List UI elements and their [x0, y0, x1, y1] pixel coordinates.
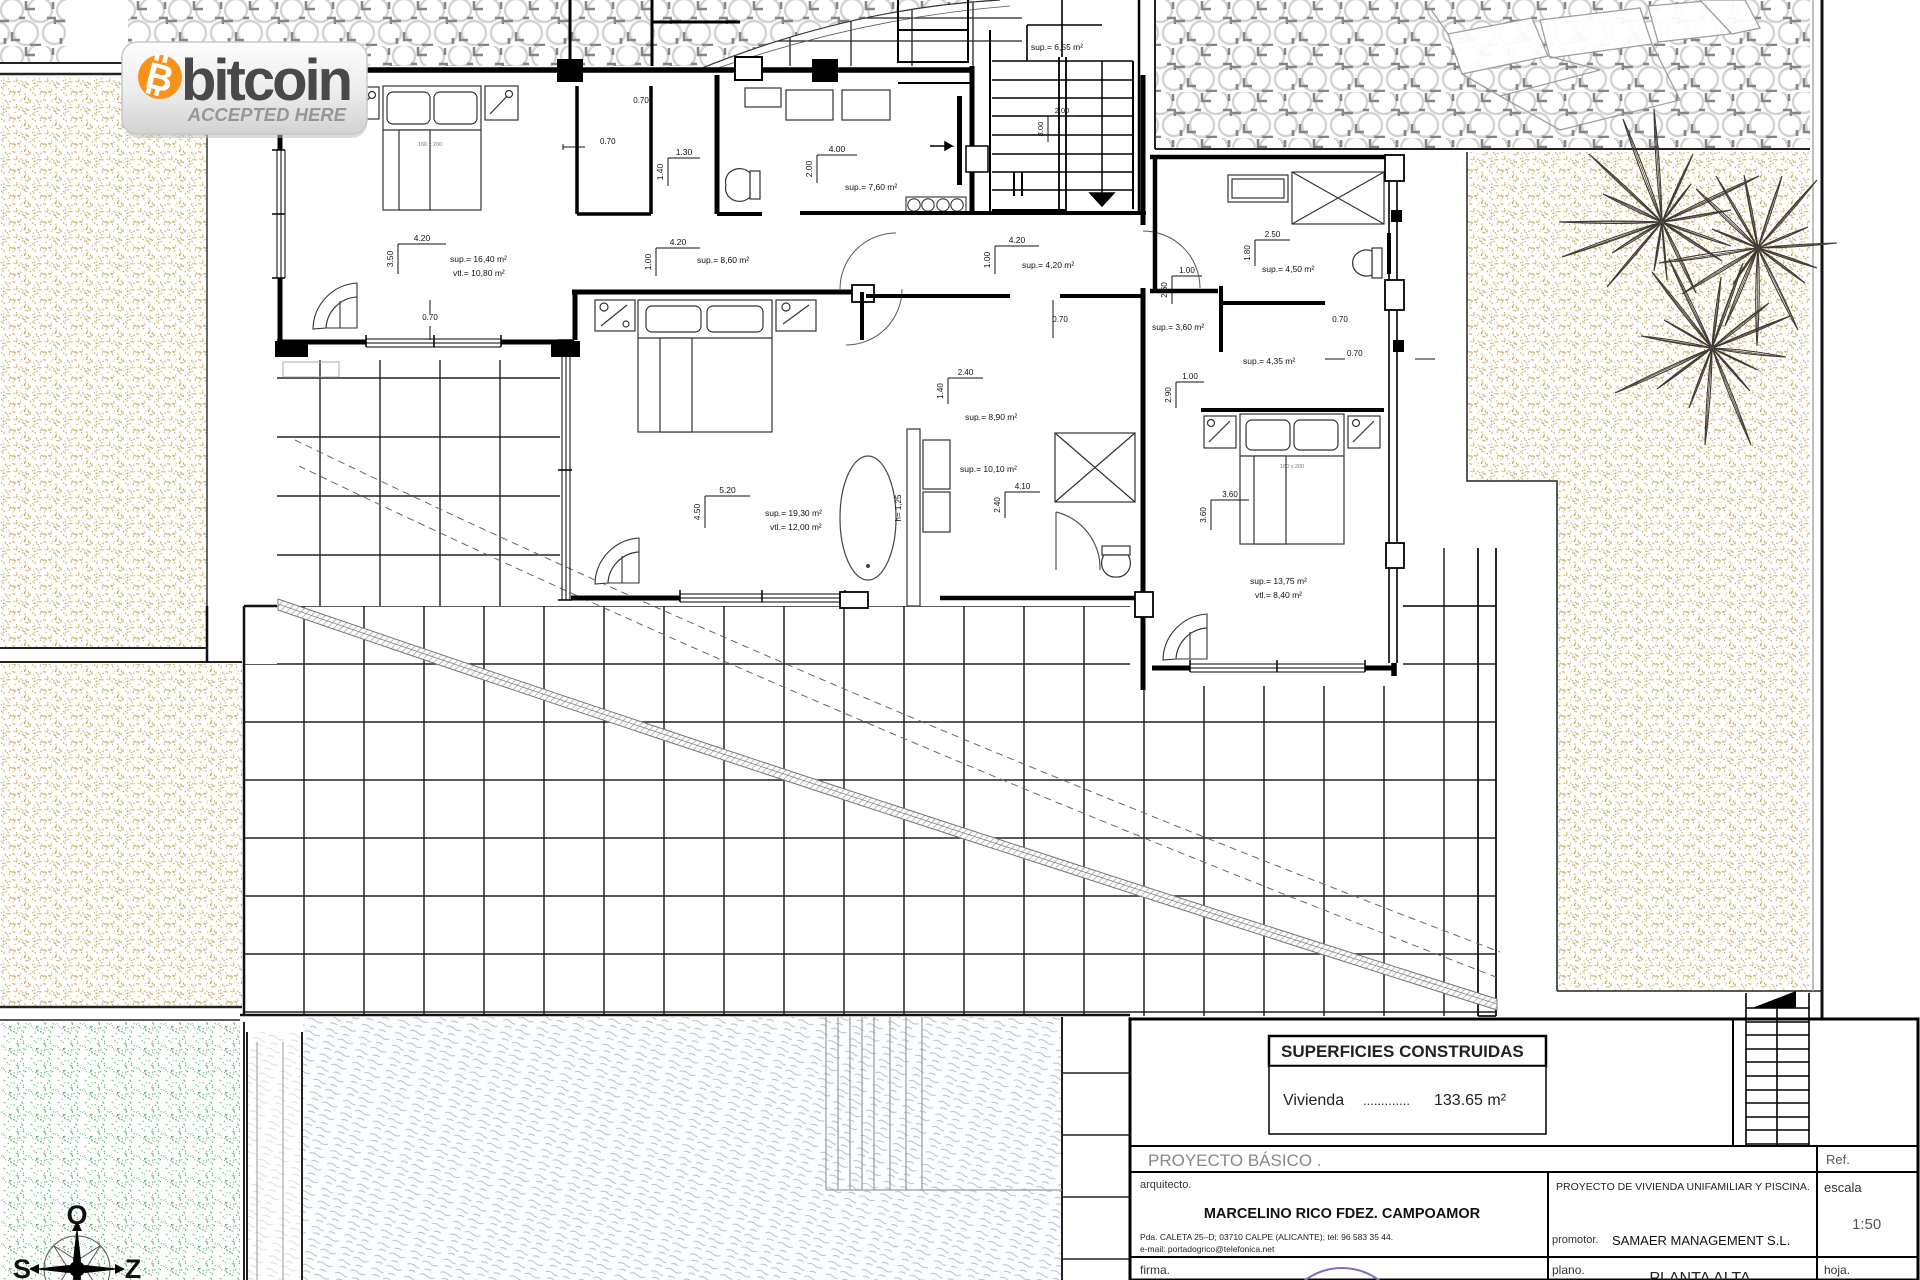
svg-text:SAMAER MANAGEMENT S.L.: SAMAER MANAGEMENT S.L. — [1612, 1233, 1790, 1248]
svg-text:0.70: 0.70 — [422, 313, 438, 322]
svg-text:1.40: 1.40 — [936, 383, 945, 399]
svg-text:vtl.= 12,00 m²: vtl.= 12,00 m² — [770, 522, 822, 532]
svg-text:1.00: 1.00 — [1182, 372, 1198, 381]
svg-text:PROYECTO BÁSICO .: PROYECTO BÁSICO . — [1148, 1151, 1322, 1170]
svg-text:e-mail: portadogrico@telefonic: e-mail: portadogrico@telefonica.net — [1140, 1244, 1275, 1254]
svg-text:vtl.= 8,40 m²: vtl.= 8,40 m² — [1255, 590, 1302, 600]
svg-text:Pda. CALETA 25–D; 03710 CALPE: Pda. CALETA 25–D; 03710 CALPE (ALICANTE)… — [1140, 1232, 1393, 1242]
svg-text:4.10: 4.10 — [1015, 482, 1031, 491]
svg-text:sup.= 16,40 m²: sup.= 16,40 m² — [450, 254, 507, 264]
svg-text:3.60: 3.60 — [1222, 490, 1238, 499]
svg-text:0.70: 0.70 — [1347, 349, 1363, 358]
svg-text:S: S — [13, 1254, 31, 1280]
svg-text:O: O — [66, 1200, 87, 1230]
svg-text:Vivienda: Vivienda — [1283, 1092, 1344, 1109]
svg-text:160 x 200: 160 x 200 — [418, 142, 442, 148]
svg-text:1.00: 1.00 — [643, 253, 653, 270]
svg-text:4.20: 4.20 — [670, 237, 687, 247]
svg-text:sup.= 7,60 m²: sup.= 7,60 m² — [845, 182, 897, 192]
svg-text:sup.= 8,90 m²: sup.= 8,90 m² — [965, 412, 1017, 422]
svg-text:plano.: plano. — [1552, 1263, 1585, 1277]
svg-text:firma.: firma. — [1140, 1263, 1170, 1277]
svg-text:160 x 200: 160 x 200 — [1280, 464, 1304, 470]
svg-text:1.00: 1.00 — [1179, 266, 1195, 275]
svg-text:Ref.: Ref. — [1826, 1152, 1850, 1167]
svg-text:.............: ............. — [1363, 1093, 1410, 1108]
svg-text:3.60: 3.60 — [1199, 507, 1208, 523]
svg-text:sup.= 8,60 m²: sup.= 8,60 m² — [697, 255, 749, 265]
svg-text:sup.= 19,30 m²: sup.= 19,30 m² — [765, 508, 822, 518]
svg-text:3.00: 3.00 — [1036, 122, 1045, 137]
svg-text:1.30: 1.30 — [676, 147, 693, 157]
svg-text:sup.= 4,20 m²: sup.= 4,20 m² — [1022, 260, 1074, 270]
svg-text:MARCELINO RICO FDEZ. CAMPOAMOR: MARCELINO RICO FDEZ. CAMPOAMOR — [1204, 1206, 1481, 1222]
svg-text:2.40: 2.40 — [958, 368, 974, 377]
svg-text:1.80: 1.80 — [1243, 245, 1252, 261]
svg-text:1:50: 1:50 — [1852, 1216, 1881, 1233]
svg-text:0.70: 0.70 — [1052, 315, 1068, 324]
svg-text:0.70: 0.70 — [633, 96, 649, 105]
svg-text:0.70: 0.70 — [1332, 315, 1348, 324]
svg-text:Z: Z — [125, 1254, 142, 1280]
svg-text:3.50: 3.50 — [385, 250, 395, 267]
svg-text:PLANTA ALTA: PLANTA ALTA — [1649, 1270, 1751, 1280]
svg-text:4.00: 4.00 — [829, 144, 846, 154]
svg-text:sup.= 13,75 m²: sup.= 13,75 m² — [1250, 576, 1307, 586]
svg-text:5.20: 5.20 — [719, 485, 736, 495]
svg-text:arquitecto.: arquitecto. — [1140, 1179, 1191, 1191]
svg-text:4.20: 4.20 — [414, 233, 431, 243]
svg-text:1.00: 1.00 — [982, 251, 992, 268]
svg-text:sup.= 10,10 m²: sup.= 10,10 m² — [960, 464, 1017, 474]
svg-text:sup.= 4,35 m²: sup.= 4,35 m² — [1243, 356, 1295, 366]
svg-text:sup.= 3,60 m²: sup.= 3,60 m² — [1152, 322, 1204, 332]
svg-text:2.00: 2.00 — [1055, 106, 1070, 115]
svg-text:ACCEPTED HERE: ACCEPTED HERE — [187, 104, 347, 125]
svg-text:sup.= 4,50 m²: sup.= 4,50 m² — [1262, 264, 1314, 274]
svg-text:1.40: 1.40 — [655, 163, 665, 180]
svg-text:4.50: 4.50 — [692, 503, 702, 520]
svg-text:h= 1,25: h= 1,25 — [894, 494, 903, 521]
svg-text:2.90: 2.90 — [1164, 387, 1173, 403]
svg-text:4.20: 4.20 — [1009, 235, 1026, 245]
svg-text:vtl.= 10,80 m²: vtl.= 10,80 m² — [453, 268, 505, 278]
svg-text:0.70: 0.70 — [600, 137, 616, 146]
svg-text:SUPERFICIES CONSTRUIDAS: SUPERFICIES CONSTRUIDAS — [1281, 1042, 1524, 1061]
svg-text:sup.= 6,55 m²: sup.= 6,55 m² — [1031, 42, 1083, 52]
svg-text:escala: escala — [1824, 1180, 1862, 1195]
svg-text:133.65 m²: 133.65 m² — [1434, 1092, 1507, 1109]
svg-text:PROYECTO DE VIVIENDA UNIFAMILI: PROYECTO DE VIVIENDA UNIFAMILIAR Y PISCI… — [1556, 1181, 1810, 1193]
svg-text:2.00: 2.00 — [804, 160, 814, 177]
svg-text:2.50: 2.50 — [1265, 230, 1281, 239]
svg-text:promotor.: promotor. — [1552, 1234, 1598, 1246]
svg-text:hoja.: hoja. — [1824, 1263, 1850, 1277]
svg-text:2.40: 2.40 — [993, 497, 1002, 513]
